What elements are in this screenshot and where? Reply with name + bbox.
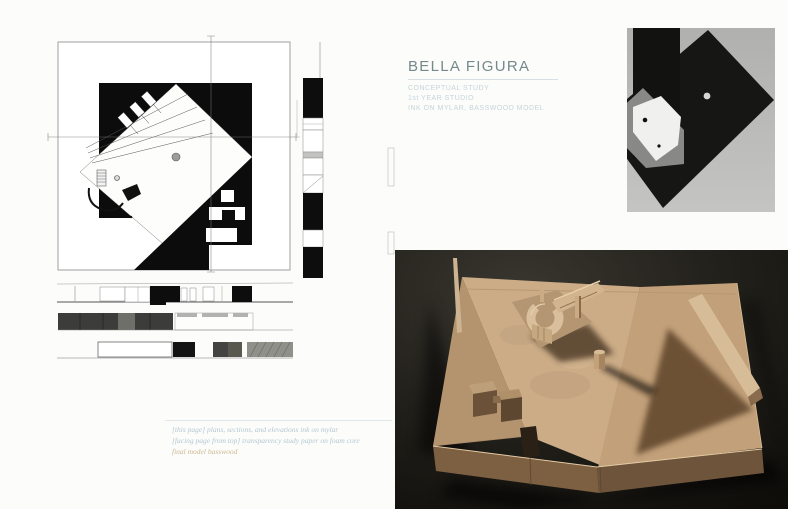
subtitle-line: CONCEPTUAL STUDY	[408, 84, 628, 94]
caption-rule	[165, 420, 392, 421]
caption-block: [this page] plans, sections, and elevati…	[165, 420, 405, 457]
edge-section-marks	[388, 148, 394, 254]
section-strip-dark	[58, 313, 293, 330]
stair-hatch	[97, 170, 106, 186]
ink-drawing-sheet	[0, 0, 400, 380]
portfolio-page: { "page": { "background": "#fcfcfb" }, "…	[0, 0, 788, 509]
title-block: BELLA FIGURA CONCEPTUAL STUDY 1st YEAR S…	[408, 58, 628, 114]
title-rule	[408, 79, 558, 80]
transparency-study-photo	[627, 28, 775, 212]
column-circle-large	[172, 153, 180, 161]
caption-lines: [this page] plans, sections, and elevati…	[165, 424, 405, 457]
subtitle-line: 1st YEAR STUDIO	[408, 94, 628, 104]
plan-drawing	[48, 36, 296, 272]
page-title: BELLA FIGURA	[408, 58, 628, 75]
column-dot	[130, 216, 132, 218]
elevation-strip	[57, 283, 293, 305]
project-subtitle: CONCEPTUAL STUDY 1st YEAR STUDIO INK ON …	[408, 84, 628, 114]
section-strip-vertical	[294, 42, 323, 278]
basswood-model-photo	[395, 250, 788, 509]
caption-line: [this page] plans, sections, and elevati…	[172, 424, 405, 435]
column-circle-small	[115, 176, 120, 181]
section-strip-mixed	[57, 342, 293, 358]
subtitle-line: INK ON MYLAR, BASSWOOD MODEL	[408, 104, 628, 114]
pin-dot	[643, 118, 648, 123]
pin-dot	[657, 144, 660, 147]
light-dot	[704, 93, 711, 100]
caption-line: final model basswood	[172, 446, 405, 457]
caption-line: [facing page from top] transparency stud…	[172, 435, 405, 446]
